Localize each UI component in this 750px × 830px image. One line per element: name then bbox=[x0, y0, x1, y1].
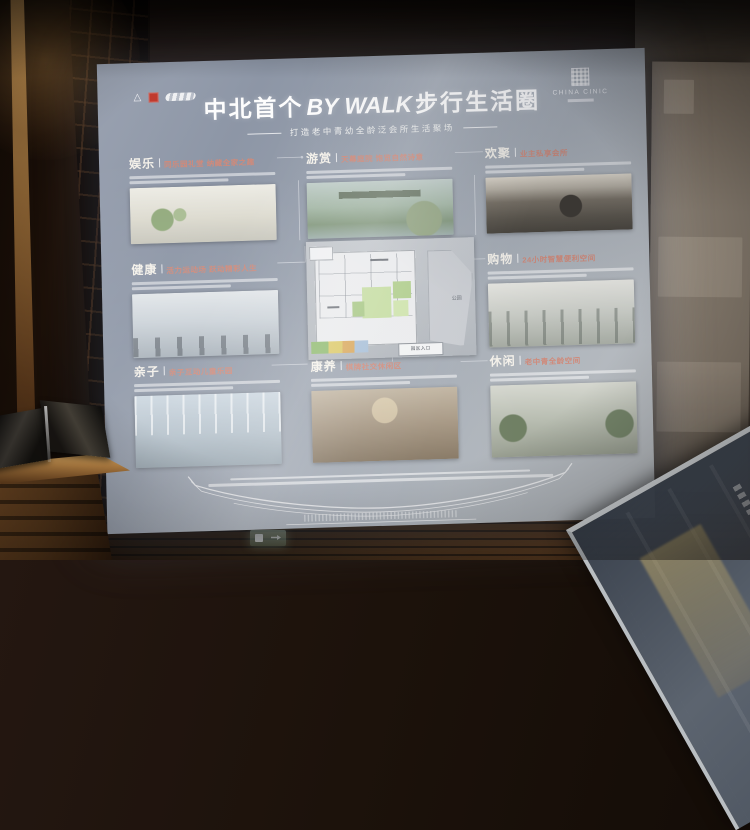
section-card-entertainment: 娱乐同乐园礼堂 纳藏全家之趣 bbox=[129, 151, 277, 244]
title-english: BY WALK bbox=[303, 91, 415, 120]
body-text-line bbox=[485, 161, 631, 168]
section-title: 亲子 bbox=[134, 362, 160, 380]
section-photo-shopping bbox=[488, 279, 635, 347]
body-text-line bbox=[311, 381, 410, 386]
open-book bbox=[0, 404, 112, 468]
body-text-line bbox=[132, 278, 278, 285]
section-photo-gathering bbox=[485, 173, 632, 233]
section-title: 游赏 bbox=[306, 149, 332, 167]
map-courtyard-green bbox=[362, 287, 391, 319]
subtitle-dash bbox=[248, 132, 282, 134]
exit-arrow-icon bbox=[271, 535, 281, 540]
section-card-kids: 亲子亲子互动儿童乐园 bbox=[134, 359, 282, 468]
body-text-line bbox=[485, 168, 584, 173]
section-subtitle: 老中青全龄空间 bbox=[525, 355, 581, 368]
divider bbox=[161, 264, 162, 273]
section-subtitle: 活力运动场 跃动精彩人生 bbox=[166, 263, 257, 277]
body-text-line bbox=[306, 173, 405, 178]
roof-line-art bbox=[185, 460, 576, 530]
divider bbox=[159, 158, 160, 167]
section-photo-wellness bbox=[311, 386, 459, 462]
map-entrance-label: 园区入口 bbox=[411, 346, 431, 353]
body-text-lines bbox=[134, 380, 280, 392]
body-text-line bbox=[134, 386, 233, 391]
section-title: 休闲 bbox=[489, 352, 515, 370]
section-photo-kids bbox=[134, 391, 282, 467]
divider bbox=[520, 356, 521, 365]
body-text-line bbox=[132, 284, 231, 289]
body-text-lines bbox=[306, 167, 452, 179]
map-area-label bbox=[327, 306, 339, 308]
exit-sign bbox=[250, 530, 286, 546]
body-text-lines bbox=[132, 278, 278, 290]
body-text-lines bbox=[311, 375, 457, 387]
map-park-label: 公园 bbox=[452, 294, 462, 301]
section-card-shopping: 购物24小时智慧便利空间 bbox=[487, 246, 635, 347]
page-subtitle: 打造老中青幼全龄泛会所生活聚场 bbox=[290, 122, 455, 139]
section-title: 娱乐 bbox=[129, 155, 155, 173]
map-entrance-label-box: 园区入口 bbox=[399, 343, 443, 355]
body-text-line bbox=[490, 369, 636, 376]
section-title: 健康 bbox=[131, 260, 157, 278]
body-text-line bbox=[129, 172, 275, 179]
section-photo-entertainment bbox=[130, 184, 277, 244]
divider bbox=[341, 361, 342, 370]
site-plan-map: 公园 园区入口 bbox=[306, 237, 477, 360]
side-board-logo-patch bbox=[664, 80, 694, 114]
body-text-line bbox=[488, 267, 634, 274]
section-card-scenery: 游赏天幕庭院 饱览自然诗意 bbox=[306, 146, 454, 239]
divider bbox=[164, 366, 165, 375]
section-subtitle: 亲子互动儿童乐园 bbox=[169, 365, 233, 378]
section-subtitle: 同乐园礼堂 纳藏全家之趣 bbox=[164, 157, 255, 171]
subtitle-dash bbox=[463, 126, 497, 128]
body-text-line bbox=[488, 274, 587, 279]
map-courtyard-green bbox=[392, 281, 411, 298]
section-card-health: 健康活力运动场 跃动精彩人生 bbox=[131, 257, 279, 358]
section-subtitle: 天幕庭院 饱览自然诗意 bbox=[341, 152, 424, 165]
map-courtyard-green bbox=[393, 300, 408, 316]
exit-figure-icon bbox=[255, 534, 263, 542]
section-photo-leisure bbox=[490, 381, 638, 457]
body-text-line bbox=[134, 380, 280, 387]
section-title: 康养 bbox=[311, 357, 337, 375]
map-amenity-strip bbox=[312, 341, 369, 354]
body-text-line bbox=[306, 167, 452, 174]
title-prefix: 中北首个 bbox=[203, 94, 304, 123]
section-title: 欢聚 bbox=[485, 144, 511, 162]
section-subtitle: 24小时智慧便利空间 bbox=[522, 252, 596, 265]
section-card-wellness: 康养棋牌社交休闲区 bbox=[311, 354, 459, 463]
body-text-lines bbox=[485, 161, 631, 173]
section-subtitle: 棋牌社交休闲区 bbox=[346, 360, 402, 373]
kiosk-reflection-gold bbox=[640, 524, 750, 698]
body-text-line bbox=[129, 178, 228, 183]
body-text-line bbox=[311, 375, 457, 382]
section-card-leisure: 休闲老中青全龄空间 bbox=[489, 348, 637, 457]
title-suffix: 步行生活圈 bbox=[415, 87, 541, 117]
map-annex-block bbox=[309, 246, 333, 261]
bywalk-display-board: △ CHINA CINIC 中北首个BY WALK步行生活圈 打造老中青幼全龄泛… bbox=[97, 48, 655, 534]
map-courtyard-green bbox=[353, 302, 365, 317]
section-photo-scenery bbox=[307, 178, 454, 238]
divider bbox=[336, 153, 337, 162]
side-display-board bbox=[648, 61, 750, 492]
body-text-lines bbox=[488, 267, 634, 279]
body-text-lines bbox=[490, 369, 636, 381]
side-board-photo bbox=[656, 362, 741, 433]
side-board-photo bbox=[658, 237, 743, 298]
body-text-lines bbox=[129, 172, 275, 184]
divider bbox=[515, 148, 516, 157]
body-text-line bbox=[490, 376, 589, 381]
divider bbox=[517, 254, 518, 263]
section-subtitle: 业主私享会所 bbox=[520, 147, 568, 159]
section-title: 购物 bbox=[487, 250, 513, 268]
section-photo-health bbox=[132, 290, 279, 358]
book-right-page bbox=[40, 400, 111, 458]
section-card-gathering: 欢聚业主私享会所 bbox=[485, 140, 633, 233]
